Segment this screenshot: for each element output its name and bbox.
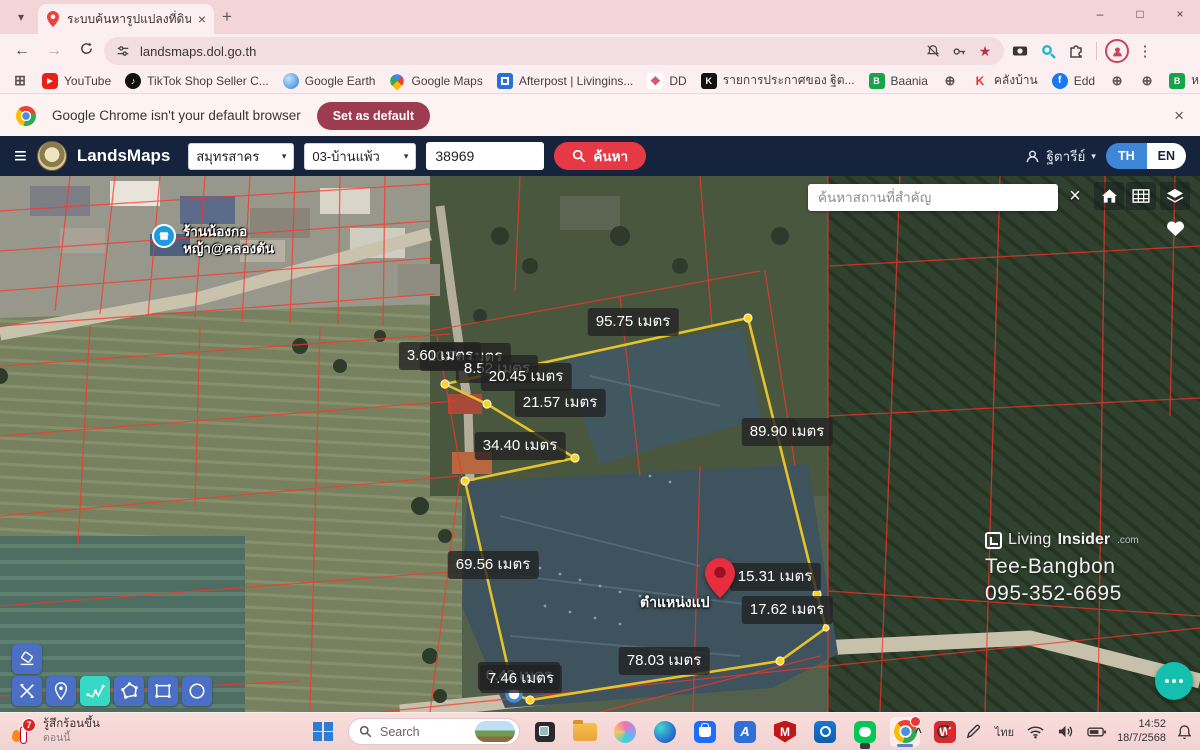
- chrome-logo-icon: [16, 106, 36, 126]
- bookmark-tiktok[interactable]: ♪TikTok Shop Seller C...: [125, 73, 269, 89]
- browser-menu-icon[interactable]: ⋮: [1133, 39, 1157, 63]
- parcel-table-button[interactable]: [1126, 182, 1156, 210]
- language-toggle: TH EN: [1106, 143, 1186, 169]
- line-button[interactable]: [850, 717, 880, 747]
- landsmaps-header: ≡ LandsMaps สมุทรสาคร▾ 03-บ้านแพ้ว▾ ค้นห…: [0, 136, 1200, 176]
- map-search-close-icon[interactable]: ×: [1062, 182, 1088, 210]
- copilot-icon: [614, 721, 636, 743]
- default-browser-notice: Google Chrome isn't your default browser…: [0, 95, 1200, 136]
- map-search-input[interactable]: [808, 184, 1058, 211]
- anydesk-icon: A: [734, 721, 756, 743]
- keyboard-language-indicator[interactable]: ไทย: [993, 723, 1016, 741]
- extensions-puzzle-icon[interactable]: [1064, 39, 1088, 63]
- start-button[interactable]: [308, 717, 338, 747]
- battery-icon[interactable]: [1085, 726, 1108, 738]
- copilot-button[interactable]: [610, 717, 640, 747]
- province-select[interactable]: สมุทรสาคร▾: [188, 143, 294, 170]
- taskbar-search[interactable]: Search: [348, 718, 520, 745]
- task-view-button[interactable]: [530, 717, 560, 747]
- set-as-default-button[interactable]: Set as default: [317, 102, 430, 130]
- bookmark-klangban[interactable]: Kคลังบ้าน: [972, 71, 1038, 90]
- tray-date: 18/7/2568: [1117, 732, 1166, 746]
- circle-tool-button[interactable]: [182, 676, 212, 706]
- measure-label: 89.90 เมตร: [742, 418, 833, 446]
- mcafee-button[interactable]: M: [770, 717, 800, 747]
- home-icon: [1101, 188, 1118, 204]
- layers-icon: [1166, 188, 1184, 205]
- globe-icon: ⊕: [1109, 73, 1125, 89]
- polygon-icon: [120, 682, 139, 700]
- measure-line-tool-button[interactable]: [80, 676, 110, 706]
- measure-label: 20.45 เมตร: [481, 363, 572, 391]
- bookmark-listing[interactable]: Kรายการประกาศของ ฐิต...: [701, 71, 855, 90]
- search-extension-icon[interactable]: [1036, 39, 1060, 63]
- reload-icon[interactable]: [72, 37, 100, 65]
- polygon-tool-button[interactable]: [114, 676, 144, 706]
- watermark: LivingInsider.com Tee-Bangbon 095-352-66…: [985, 531, 1139, 606]
- url-bar[interactable]: landsmaps.dol.go.th ★: [104, 37, 1004, 65]
- site-info-icon[interactable]: [114, 42, 132, 60]
- notice-text: Google Chrome isn't your default browser: [52, 108, 301, 123]
- microsoft-store-button[interactable]: [690, 717, 720, 747]
- livinginsider-logo: [985, 532, 1002, 549]
- edge-button[interactable]: [650, 717, 680, 747]
- measure-label: 21.57 เมตร: [515, 389, 606, 417]
- forward-icon[interactable]: →: [40, 37, 68, 65]
- globe-icon: ⊕: [1139, 73, 1155, 89]
- layers-button[interactable]: [1160, 182, 1190, 210]
- folder-icon: [573, 723, 597, 741]
- chevron-down-icon: ▾: [282, 151, 287, 162]
- point-tool-button[interactable]: [46, 676, 76, 706]
- brand-title: LandsMaps: [77, 146, 171, 166]
- table-grid-icon: [1132, 189, 1150, 203]
- k-red-icon: K: [972, 73, 988, 89]
- bookmark-google-maps[interactable]: Google Maps: [389, 73, 482, 89]
- new-tab-button[interactable]: +: [214, 4, 240, 30]
- user-menu[interactable]: ฐิตารีย์ ▾: [1025, 145, 1096, 167]
- circle-icon: [188, 682, 206, 700]
- minimize-button[interactable]: –: [1080, 0, 1120, 28]
- measure-label: 34.40 เมตร: [475, 432, 566, 460]
- dol-emblem-logo: [37, 141, 67, 171]
- afterpost-icon: [497, 73, 513, 89]
- toolbar-divider: [1096, 42, 1097, 60]
- notifications-bell-icon[interactable]: [1175, 724, 1194, 740]
- map-pin-favicon: [46, 11, 60, 27]
- bookmark-baania[interactable]: BBaania: [869, 73, 928, 89]
- windows-logo-icon: [313, 722, 333, 742]
- search-button[interactable]: ค้นหา: [554, 142, 646, 170]
- taskbar-center: Search A M W: [308, 713, 960, 750]
- wifi-icon[interactable]: [1025, 725, 1046, 739]
- search-icon: [359, 725, 372, 738]
- url-text: landsmaps.dol.go.th: [140, 44, 916, 59]
- bookmarks-bar: ⊞ ▶YouTube ♪TikTok Shop Seller C... Goog…: [0, 68, 1200, 94]
- back-icon[interactable]: ←: [8, 37, 36, 65]
- measure-label: 95.75 เมตร: [588, 308, 679, 336]
- password-key-icon[interactable]: [950, 42, 968, 60]
- anydesk-button[interactable]: A: [730, 717, 760, 747]
- browser-tab[interactable]: ระบบค้นหารูปแปลงที่ดิน (LandsMa ×: [38, 4, 214, 34]
- user-icon: [1025, 149, 1040, 164]
- task-view-icon: [535, 722, 555, 742]
- eraser-icon: [18, 650, 36, 668]
- search-icon: [572, 149, 586, 163]
- system-tray: ^ ไทย 14:52 18/7/2568: [913, 713, 1194, 750]
- more-actions-fab[interactable]: [1155, 662, 1193, 700]
- bookmark-globe-3[interactable]: ⊕: [1139, 73, 1155, 89]
- apps-grid-icon[interactable]: ⊞: [12, 73, 28, 89]
- lang-en-button[interactable]: EN: [1147, 143, 1186, 169]
- hamburger-menu-icon[interactable]: ≡: [14, 145, 27, 167]
- dd-icon: ❖: [647, 73, 663, 89]
- bookmark-dd[interactable]: ❖DD: [647, 73, 686, 89]
- weather-widget[interactable]: 7 รู้สึกร้อนขึ้น ตอนนี้: [0, 718, 112, 744]
- tiktok-icon: ♪: [125, 73, 141, 89]
- notice-close-icon[interactable]: ×: [1174, 106, 1184, 126]
- store-icon: [694, 721, 716, 743]
- youtube-icon: ▶: [42, 73, 58, 89]
- k-icon: K: [701, 73, 717, 89]
- pen-input-icon[interactable]: [963, 723, 984, 740]
- district-select[interactable]: 03-บ้านแพ้ว▾: [304, 143, 416, 170]
- tray-overflow-icon[interactable]: ^: [913, 725, 924, 739]
- browser-tab-strip: ▾ ระบบค้นหารูปแปลงที่ดิน (LandsMa × + – …: [0, 0, 1200, 34]
- place-label[interactable]: ร้านน้องกอหญ้า@คลองตัน: [152, 224, 274, 258]
- bookmark-afterpost[interactable]: Afterpost | Livingins...: [497, 73, 634, 89]
- favorites-button[interactable]: [1160, 214, 1190, 242]
- temperature-icon: 7: [12, 718, 36, 744]
- eraser-tool-button[interactable]: [12, 644, 42, 674]
- pencil-ruler-icon: [18, 682, 36, 700]
- pin-label: ตำแหน่งแป: [640, 592, 710, 614]
- search-highlight-image: [475, 721, 515, 742]
- bookmark-youtube[interactable]: ▶YouTube: [42, 73, 111, 89]
- mcafee-shield-icon: M: [774, 721, 796, 743]
- tab-title: ระบบค้นหารูปแปลงที่ดิน (LandsMa: [67, 10, 191, 29]
- tab-close-icon[interactable]: ×: [198, 11, 206, 27]
- shop-poi-icon: [152, 224, 176, 248]
- facebook-icon: f: [1052, 73, 1068, 89]
- draw-tool-button[interactable]: [12, 676, 42, 706]
- baania-icon: B: [869, 73, 885, 89]
- bookmark-star-icon[interactable]: ★: [976, 42, 994, 60]
- home-extent-button[interactable]: [1094, 182, 1124, 210]
- clock[interactable]: 14:52 18/7/2568: [1117, 718, 1166, 746]
- chevron-down-icon: ▾: [1091, 151, 1096, 162]
- measure-label: 17.62 เมตร: [742, 596, 833, 624]
- outlook-icon: [814, 721, 836, 743]
- measure-label: 7.46 เมตร: [480, 665, 562, 693]
- sync-status-icon[interactable]: [933, 723, 954, 740]
- tray-time: 14:52: [1117, 718, 1166, 732]
- windows-taskbar: 7 รู้สึกร้อนขึ้น ตอนนี้ Search A M: [0, 712, 1200, 750]
- sync-alert-dot: [947, 729, 954, 736]
- bookmark-globe-1[interactable]: ⊕: [942, 73, 958, 89]
- outlook-button[interactable]: [810, 717, 840, 747]
- measure-label: 15.31 เมตร: [730, 563, 821, 591]
- globe-icon: ⊕: [942, 73, 958, 89]
- bookmark-price-eval[interactable]: BหาราคาประเมินB: [1169, 71, 1200, 90]
- close-button[interactable]: ×: [1160, 0, 1200, 28]
- screen: ▾ ระบบค้นหารูปแปลงที่ดิน (LandsMa × + – …: [0, 0, 1200, 750]
- line-badge: [860, 743, 870, 749]
- google-earth-icon: [283, 73, 299, 89]
- google-maps-icon: [388, 71, 407, 90]
- line-icon: [854, 721, 876, 743]
- polyline-icon: [86, 683, 105, 699]
- notifications-blocked-icon[interactable]: [924, 42, 942, 60]
- maximize-button[interactable]: □: [1120, 0, 1160, 28]
- bookmark-globe-2[interactable]: ⊕: [1109, 73, 1125, 89]
- map-canvas[interactable]: 10.79 เมตร 3.60 เมตร 8.52 เมตร 20.45 เมต…: [0, 176, 1200, 712]
- lang-th-button[interactable]: TH: [1106, 143, 1147, 169]
- parcel-number-input[interactable]: [426, 142, 544, 170]
- rectangle-tool-button[interactable]: [148, 676, 178, 706]
- browser-toolbar: ← → landsmaps.dol.go.th ★: [0, 34, 1200, 68]
- volume-icon[interactable]: [1055, 724, 1076, 739]
- rectangle-icon: [154, 683, 172, 699]
- tab-search-icon[interactable]: ▾: [8, 4, 34, 30]
- pin-tool-icon: [53, 682, 69, 700]
- window-controls: – □ ×: [1080, 0, 1200, 28]
- chevron-down-icon: ▾: [404, 151, 409, 162]
- bookmark-google-earth[interactable]: Google Earth: [283, 73, 376, 89]
- heart-icon: [1166, 220, 1185, 237]
- file-explorer-button[interactable]: [570, 717, 600, 747]
- profile-avatar[interactable]: [1105, 39, 1129, 63]
- measure-label: 69.56 เมตร: [448, 551, 539, 579]
- measure-label: 78.03 เมตร: [619, 647, 710, 675]
- screenshot-extension-icon[interactable]: [1008, 39, 1032, 63]
- edge-icon: [654, 721, 676, 743]
- bookmark-edd[interactable]: fEdd: [1052, 73, 1095, 89]
- b-green-icon: B: [1169, 73, 1185, 89]
